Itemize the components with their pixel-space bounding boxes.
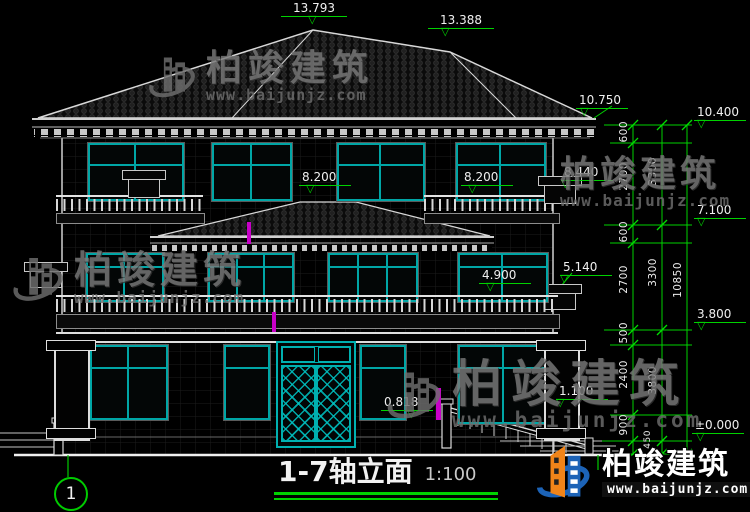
section-marker bbox=[272, 312, 276, 332]
watermark-url: www.baijunjz.com bbox=[452, 410, 702, 432]
pier-base bbox=[46, 428, 96, 439]
door-leaf bbox=[316, 365, 351, 442]
dim-label: 600 bbox=[618, 121, 630, 143]
brand-url: www.baijunjz.com bbox=[602, 482, 750, 498]
elevation-marker: 8.200 ▽ bbox=[461, 171, 513, 186]
dim-label: 600 bbox=[618, 221, 630, 243]
watermark-url: www.baijunjz.com bbox=[560, 193, 730, 210]
cad-elevation-drawing: 13.793 ▽ 13.388 ▽ 10.750 ▽ 10.400 ▽ 8.20… bbox=[0, 0, 750, 512]
dim-label: 500 bbox=[618, 322, 630, 344]
watermark-url: www.baijunjz.com bbox=[74, 290, 246, 307]
pier-capital bbox=[536, 340, 586, 351]
elevation-marker: 3.800 ▽ bbox=[694, 308, 746, 323]
watermark-brand: 柏竣建筑 bbox=[206, 50, 374, 87]
window bbox=[90, 345, 168, 420]
elevation-triangle-icon: ▽ bbox=[306, 184, 314, 193]
elevation-triangle-icon: ▽ bbox=[697, 119, 705, 128]
title-underline-thin bbox=[274, 498, 498, 500]
balcony-fascia bbox=[424, 213, 560, 224]
watermark: 柏竣建筑 www.baijunjz.com bbox=[10, 250, 246, 308]
elevation-marker-apex2: 13.388 ▽ bbox=[428, 14, 494, 29]
window bbox=[212, 143, 292, 201]
baijun-logo-icon bbox=[146, 50, 198, 104]
baijun-logo-color-icon bbox=[536, 440, 594, 506]
elevation-marker: 4.900 ▽ bbox=[479, 269, 531, 284]
elevation-marker: 5.140 ▽ bbox=[560, 261, 612, 276]
pier-capital bbox=[46, 340, 96, 351]
door-transom bbox=[281, 346, 351, 363]
watermark-brand: 柏竣建筑 bbox=[452, 358, 702, 410]
watermark-url: www.baijunjz.com bbox=[206, 88, 374, 104]
dim-label-overall: 10850 bbox=[672, 262, 684, 298]
elevation-triangle-icon: ▽ bbox=[697, 217, 705, 226]
drawing-title-block: 1-7轴立面 1:100 bbox=[278, 458, 476, 486]
window bbox=[224, 345, 270, 420]
elevation-triangle-icon: ▽ bbox=[308, 15, 316, 24]
watermark: 柏竣建筑 www.baijunjz.com bbox=[146, 50, 374, 104]
elevation-value: 13.388 bbox=[428, 14, 494, 29]
baijun-logo-icon bbox=[10, 250, 66, 308]
drawing-scale: 1:100 bbox=[425, 465, 477, 486]
baijun-logo-icon bbox=[384, 363, 444, 427]
axis-bubble-1: 1 bbox=[54, 477, 88, 511]
balcony-slab bbox=[56, 314, 560, 329]
watermark-brand: 柏竣建筑 bbox=[560, 156, 730, 193]
elevation-marker: 10.750 ▽ bbox=[576, 94, 628, 109]
dim-label: 2700 bbox=[618, 265, 630, 294]
pier-capital bbox=[128, 179, 160, 198]
elevation-marker: 8.200 ▽ bbox=[299, 171, 351, 186]
dim-label: 3300 bbox=[647, 258, 659, 287]
axis-label: 1 bbox=[66, 484, 77, 504]
brand-name: 柏竣建筑 bbox=[602, 449, 750, 480]
door-leaf bbox=[281, 365, 316, 442]
corner-pier bbox=[54, 343, 90, 441]
drawing-title: 1-7轴立面 bbox=[278, 458, 413, 486]
elevation-triangle-icon: ▽ bbox=[486, 282, 494, 291]
elevation-marker: 10.400 ▽ bbox=[694, 106, 746, 121]
title-underline bbox=[274, 492, 498, 495]
elevation-triangle-icon: ▽ bbox=[580, 107, 588, 116]
section-marker bbox=[247, 222, 251, 244]
watermark-brand: 柏竣建筑 bbox=[74, 251, 246, 291]
elevation-triangle-icon: ▽ bbox=[468, 184, 476, 193]
watermark: 柏竣建筑 www.baijunjz.com bbox=[384, 358, 702, 432]
elevation-triangle-icon: ▽ bbox=[441, 27, 449, 36]
balcony-fascia bbox=[56, 213, 205, 224]
elevation-marker-apex: 13.793 ▽ bbox=[281, 2, 347, 17]
elevation-triangle-icon: ▽ bbox=[697, 321, 705, 330]
entry-door bbox=[276, 341, 356, 448]
brand-logo-block: 柏竣建筑 www.baijunjz.com bbox=[536, 440, 750, 506]
balcony-railing bbox=[56, 195, 203, 215]
elevation-triangle-icon: ▽ bbox=[560, 274, 568, 283]
watermark: 柏竣建筑 www.baijunjz.com bbox=[560, 156, 730, 210]
balcony-railing bbox=[424, 195, 558, 215]
